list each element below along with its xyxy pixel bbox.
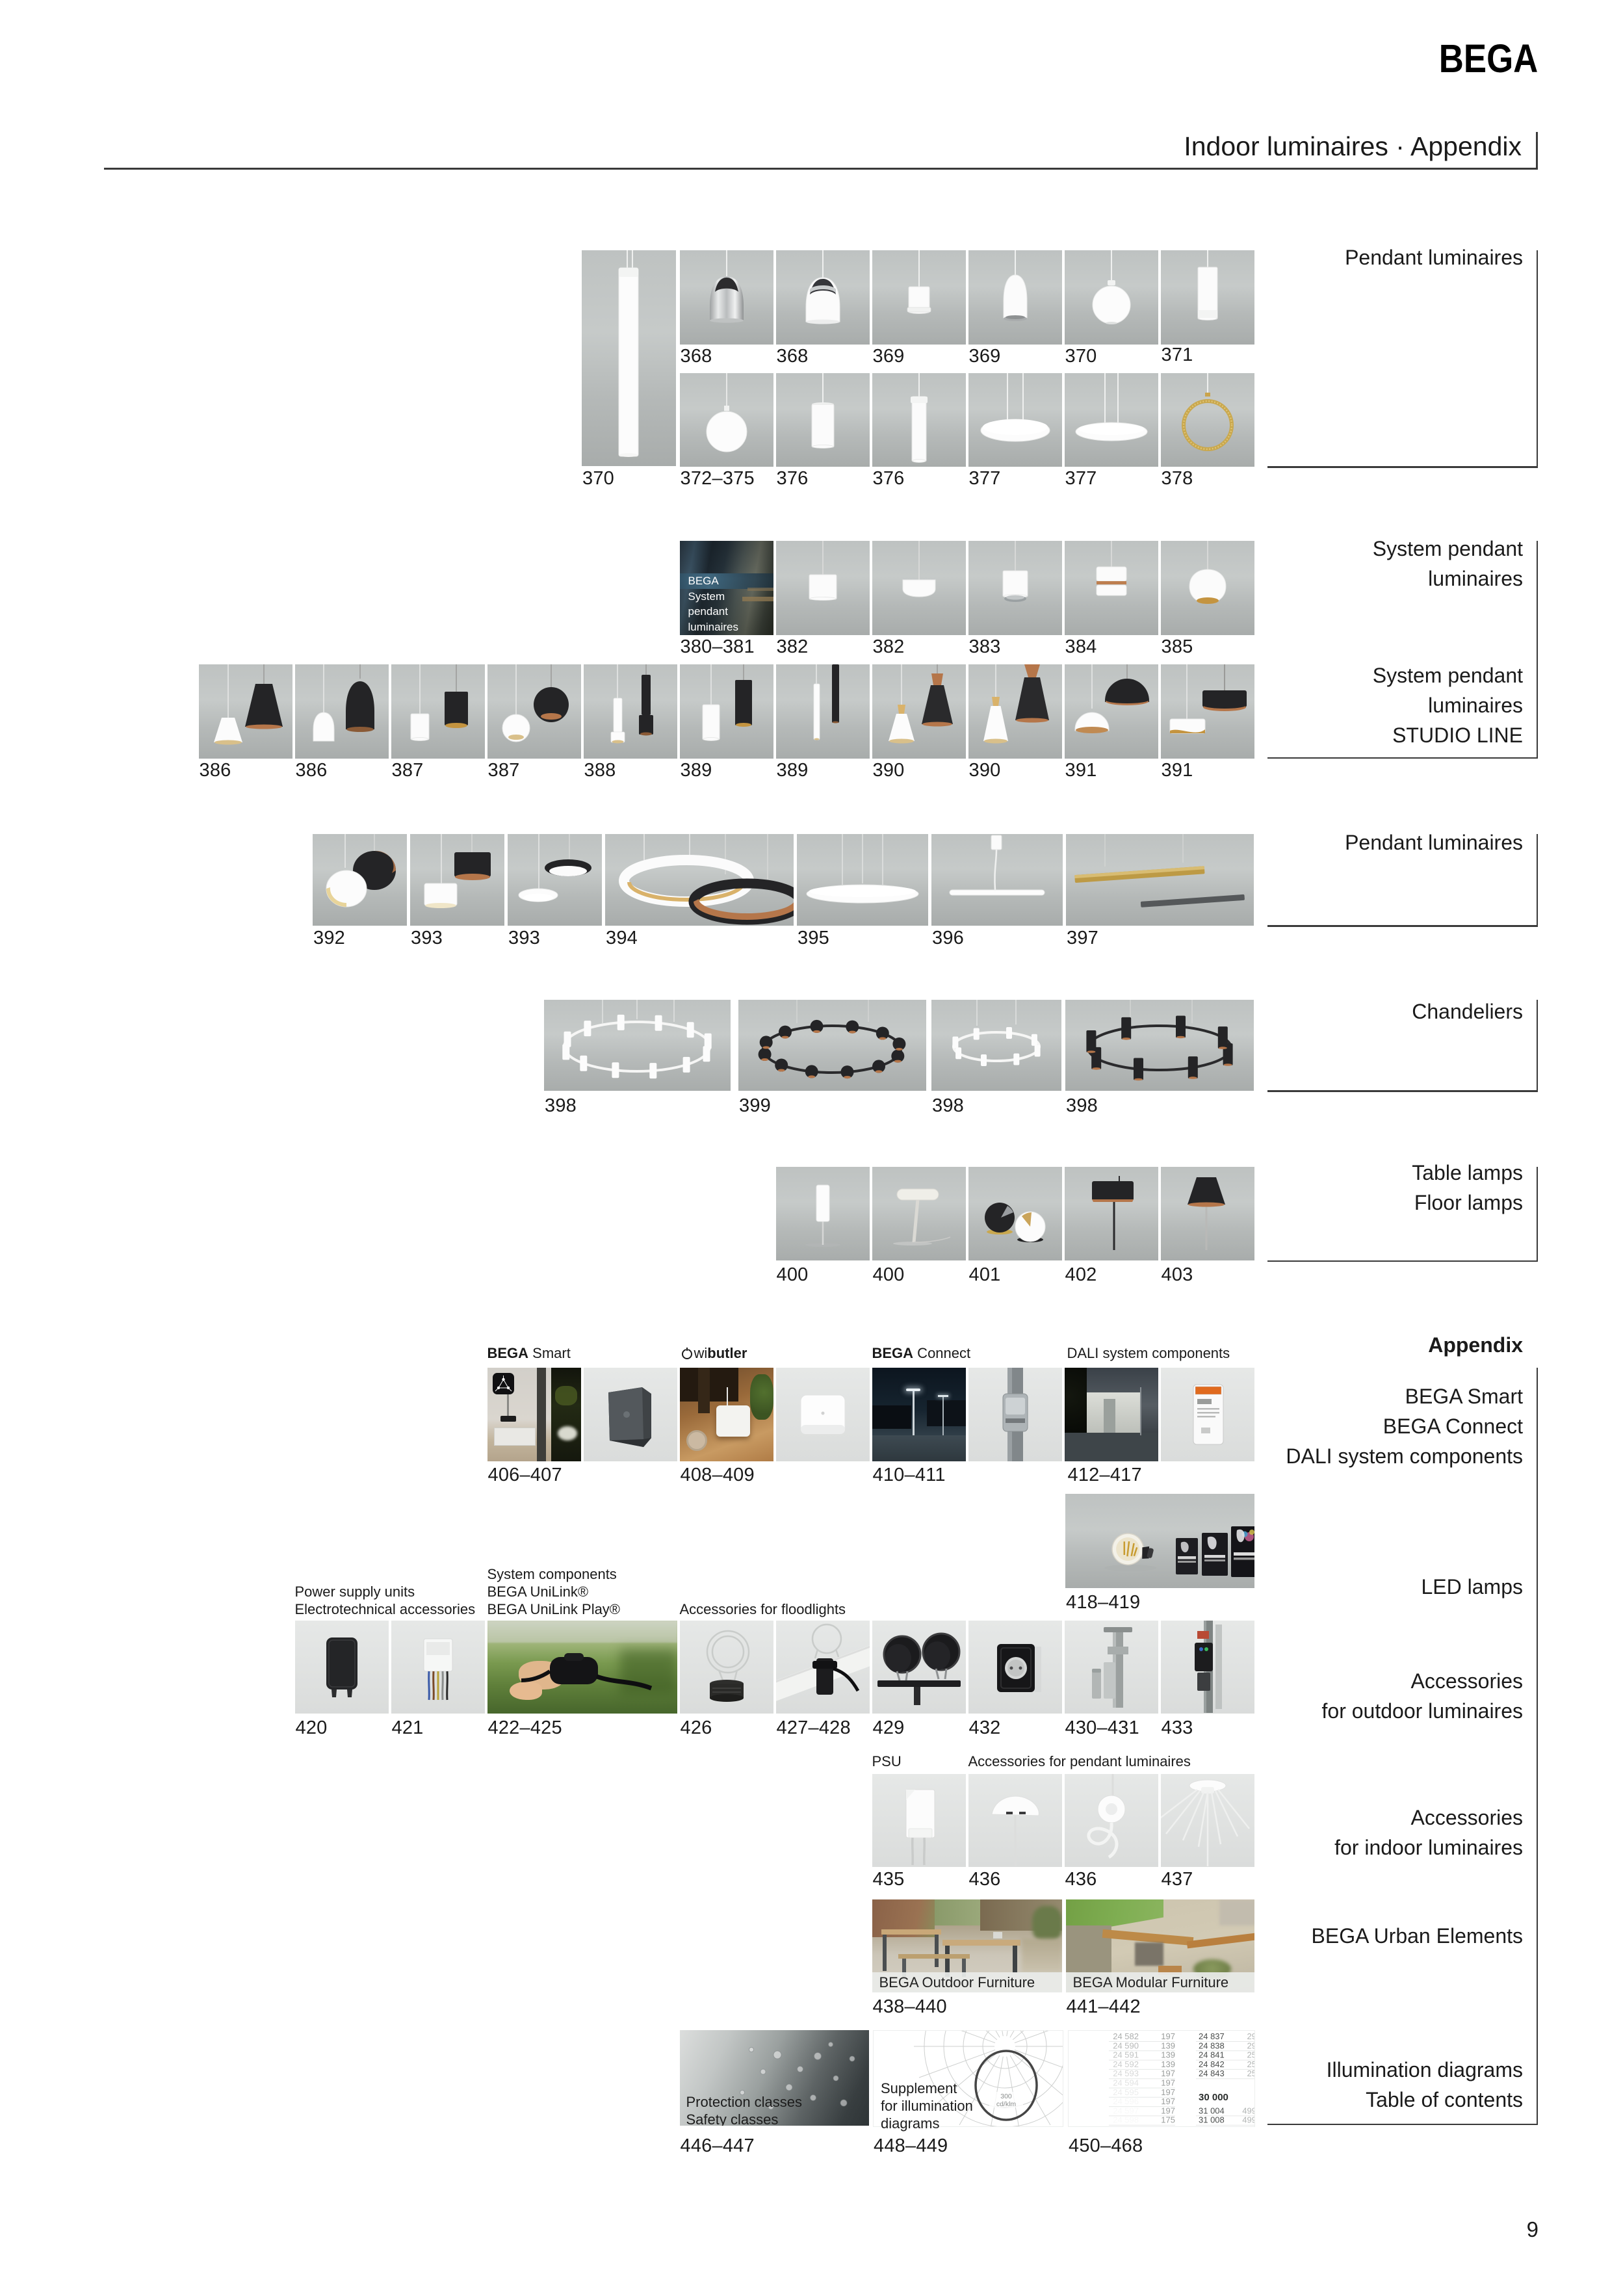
svg-text:197: 197 bbox=[1161, 2031, 1175, 2041]
svg-text:24 592: 24 592 bbox=[1113, 2059, 1139, 2069]
svg-text:24 591: 24 591 bbox=[1113, 2050, 1139, 2060]
svg-text:24 594: 24 594 bbox=[1113, 2078, 1139, 2088]
svg-text:24 599: 24 599 bbox=[1113, 2124, 1139, 2126]
svg-text:197: 197 bbox=[1161, 2096, 1175, 2106]
svg-text:24 838: 24 838 bbox=[1199, 2041, 1225, 2050]
svg-text:30 000: 30 000 bbox=[1199, 2092, 1228, 2103]
svg-text:25: 25 bbox=[1247, 2059, 1254, 2069]
svg-text:197: 197 bbox=[1161, 2078, 1175, 2088]
svg-text:24 841: 24 841 bbox=[1199, 2050, 1225, 2060]
svg-text:499: 499 bbox=[1242, 2115, 1254, 2125]
svg-text:24 582: 24 582 bbox=[1113, 2031, 1139, 2041]
svg-text:24 597: 24 597 bbox=[1113, 2106, 1139, 2115]
svg-text:24 595: 24 595 bbox=[1113, 2087, 1139, 2097]
svg-text:139: 139 bbox=[1161, 2050, 1175, 2060]
svg-text:175: 175 bbox=[1161, 2115, 1175, 2125]
svg-text:24 843: 24 843 bbox=[1199, 2068, 1225, 2078]
svg-text:24 598: 24 598 bbox=[1113, 2115, 1139, 2125]
svg-text:31 004: 31 004 bbox=[1199, 2106, 1225, 2115]
svg-text:197: 197 bbox=[1161, 2106, 1175, 2115]
svg-text:152: 152 bbox=[1161, 2124, 1175, 2126]
svg-text:499: 499 bbox=[1242, 2124, 1254, 2126]
svg-text:24 842: 24 842 bbox=[1199, 2059, 1225, 2069]
svg-text:139: 139 bbox=[1161, 2041, 1175, 2050]
svg-text:24 593: 24 593 bbox=[1113, 2068, 1139, 2078]
svg-text:25: 25 bbox=[1247, 2050, 1254, 2060]
svg-text:25: 25 bbox=[1247, 2068, 1254, 2078]
svg-text:29: 29 bbox=[1247, 2031, 1254, 2041]
svg-text:24 596: 24 596 bbox=[1113, 2096, 1139, 2106]
svg-text:24 837: 24 837 bbox=[1199, 2031, 1225, 2041]
svg-text:197: 197 bbox=[1161, 2087, 1175, 2097]
svg-text:29: 29 bbox=[1247, 2041, 1254, 2050]
svg-text:31 009: 31 009 bbox=[1199, 2124, 1225, 2126]
svg-text:499: 499 bbox=[1242, 2106, 1254, 2115]
svg-text:31 008: 31 008 bbox=[1199, 2115, 1225, 2125]
svg-text:24 590: 24 590 bbox=[1113, 2041, 1139, 2050]
svg-text:139: 139 bbox=[1161, 2059, 1175, 2069]
svg-text:300: 300 bbox=[1000, 2093, 1012, 2100]
svg-text:cd/klm: cd/klm bbox=[996, 2100, 1017, 2108]
svg-text:197: 197 bbox=[1161, 2068, 1175, 2078]
